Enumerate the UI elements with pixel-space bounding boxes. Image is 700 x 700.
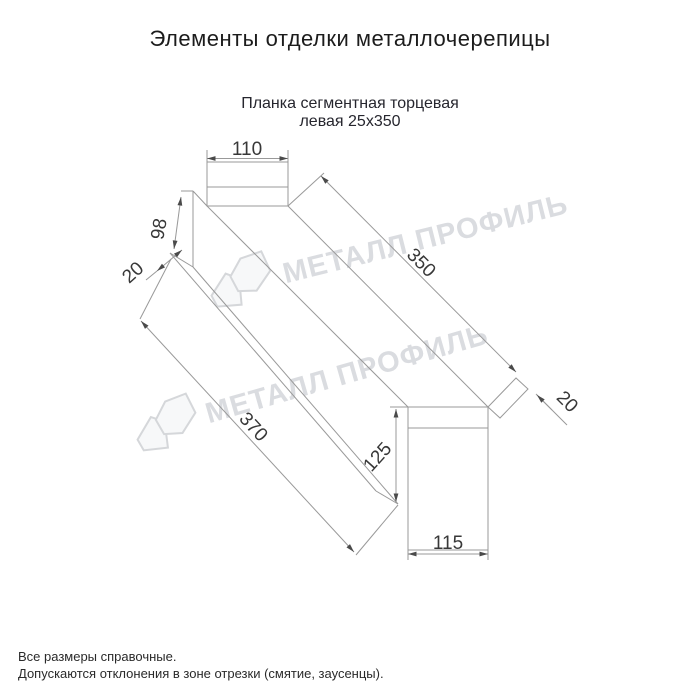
watermark-2: МЕТАЛЛ ПРОФИЛЬ xyxy=(129,309,493,455)
note-cutting-tolerances: Допускаются отклонения в зоне отрезки (с… xyxy=(18,665,658,682)
dim-20-right-label: 20 xyxy=(552,387,582,417)
metall-profil-logo-icon xyxy=(129,392,203,455)
dimension-end-face-width: 115 xyxy=(408,533,488,560)
dimension-left-face-height: 98 xyxy=(147,197,181,249)
dim-98-label: 98 xyxy=(147,217,171,241)
dim-20-left-label: 20 xyxy=(118,258,148,288)
dim-110-label: 110 xyxy=(232,139,262,160)
page: Элементы отделки металлочерепицы Планка … xyxy=(0,0,700,700)
dim-115-label: 115 xyxy=(433,533,463,554)
footer-notes: Все размеры справочные. Допускаются откл… xyxy=(18,648,658,682)
dimension-right-fold: 20 xyxy=(536,387,582,425)
dim-125-label: 125 xyxy=(360,439,397,477)
technical-drawing: МЕТАЛЛ ПРОФИЛЬ МЕТАЛЛ ПРОФИЛЬ xyxy=(0,0,700,700)
note-dimensions-reference: Все размеры справочные. xyxy=(18,648,658,665)
dimension-top-flange-width: 110 xyxy=(207,139,288,162)
metall-profil-logo-icon xyxy=(204,250,276,311)
